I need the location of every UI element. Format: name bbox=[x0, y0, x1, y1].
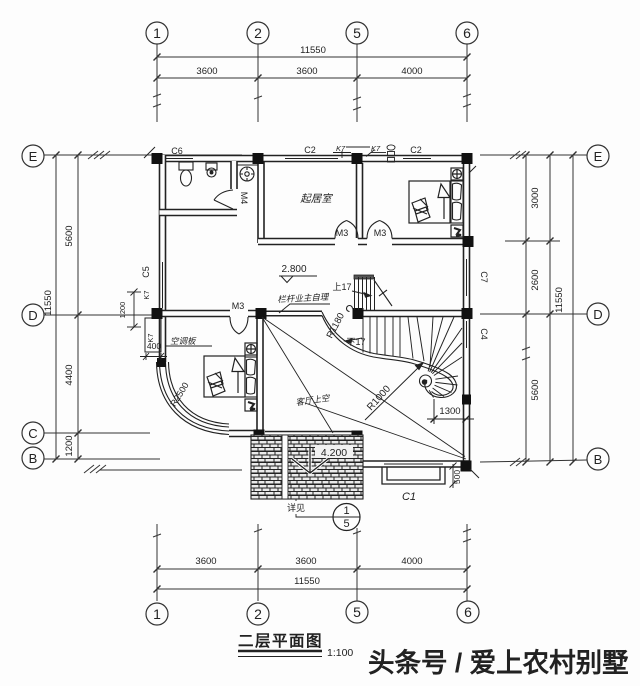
svg-text:D: D bbox=[28, 308, 37, 323]
svg-text:1200: 1200 bbox=[118, 302, 127, 319]
svg-text:C2: C2 bbox=[304, 145, 316, 155]
svg-text:详见: 详见 bbox=[287, 502, 305, 513]
svg-text:M3: M3 bbox=[336, 228, 349, 238]
svg-text:K7: K7 bbox=[146, 333, 155, 342]
svg-text:起居室: 起居室 bbox=[300, 193, 333, 205]
svg-text:B: B bbox=[29, 451, 38, 466]
svg-text:C2: C2 bbox=[410, 145, 422, 155]
svg-text:5600: 5600 bbox=[64, 225, 75, 246]
svg-text:2: 2 bbox=[254, 606, 262, 622]
svg-text:3600: 3600 bbox=[295, 556, 316, 567]
svg-text:11550: 11550 bbox=[554, 287, 565, 313]
svg-text:1:100: 1:100 bbox=[327, 647, 353, 659]
svg-text:2: 2 bbox=[254, 25, 262, 41]
svg-text:6: 6 bbox=[463, 25, 471, 41]
svg-text:C7: C7 bbox=[479, 271, 489, 283]
svg-text:4.200: 4.200 bbox=[321, 447, 347, 459]
svg-text:5600: 5600 bbox=[530, 379, 541, 400]
svg-text:11550: 11550 bbox=[43, 290, 54, 316]
svg-text:5: 5 bbox=[353, 25, 361, 41]
svg-text:11550: 11550 bbox=[294, 576, 320, 587]
svg-text:4000: 4000 bbox=[401, 66, 422, 77]
svg-text:客厅上空: 客厅上空 bbox=[295, 393, 332, 408]
svg-text:K7: K7 bbox=[336, 144, 346, 153]
svg-text:C6: C6 bbox=[171, 146, 183, 156]
svg-text:B: B bbox=[594, 452, 603, 467]
svg-text:2600: 2600 bbox=[530, 269, 541, 290]
svg-text:M3: M3 bbox=[374, 228, 387, 238]
svg-text:6: 6 bbox=[464, 604, 472, 620]
svg-text:上17: 上17 bbox=[332, 282, 351, 292]
svg-text:C: C bbox=[28, 426, 37, 441]
svg-text:C1: C1 bbox=[402, 491, 416, 503]
svg-text:4000: 4000 bbox=[401, 556, 422, 567]
svg-text:D: D bbox=[593, 307, 602, 322]
svg-text:1: 1 bbox=[153, 25, 161, 41]
svg-text:K7: K7 bbox=[142, 290, 151, 299]
svg-text:3600: 3600 bbox=[296, 66, 317, 77]
svg-text:1: 1 bbox=[153, 606, 161, 622]
svg-text:1: 1 bbox=[343, 505, 349, 517]
svg-text:3000: 3000 bbox=[530, 187, 541, 208]
svg-text:R1000: R1000 bbox=[365, 383, 393, 413]
svg-text:3600: 3600 bbox=[196, 66, 217, 77]
svg-text:500: 500 bbox=[452, 470, 462, 484]
svg-text:M4: M4 bbox=[239, 192, 249, 205]
svg-text:二层平面图: 二层平面图 bbox=[238, 632, 323, 650]
svg-text:头条号 / 爱上农村别墅: 头条号 / 爱上农村别墅 bbox=[368, 648, 629, 678]
svg-text:E: E bbox=[29, 149, 38, 164]
svg-text:C4: C4 bbox=[479, 328, 489, 340]
svg-text:5: 5 bbox=[343, 518, 349, 530]
svg-text:11550: 11550 bbox=[300, 45, 326, 56]
svg-text:2.800: 2.800 bbox=[281, 264, 306, 275]
svg-text:1200: 1200 bbox=[64, 435, 75, 456]
svg-text:1300: 1300 bbox=[439, 406, 460, 417]
svg-text:E: E bbox=[594, 149, 603, 164]
svg-text:空调板: 空调板 bbox=[170, 336, 197, 346]
svg-text:栏杆业主自理: 栏杆业主自理 bbox=[277, 292, 330, 305]
svg-text:3600: 3600 bbox=[195, 556, 216, 567]
svg-text:4400: 4400 bbox=[64, 364, 75, 385]
svg-text:5: 5 bbox=[353, 604, 361, 620]
svg-text:M3: M3 bbox=[232, 301, 245, 311]
svg-text:C5: C5 bbox=[141, 266, 151, 278]
